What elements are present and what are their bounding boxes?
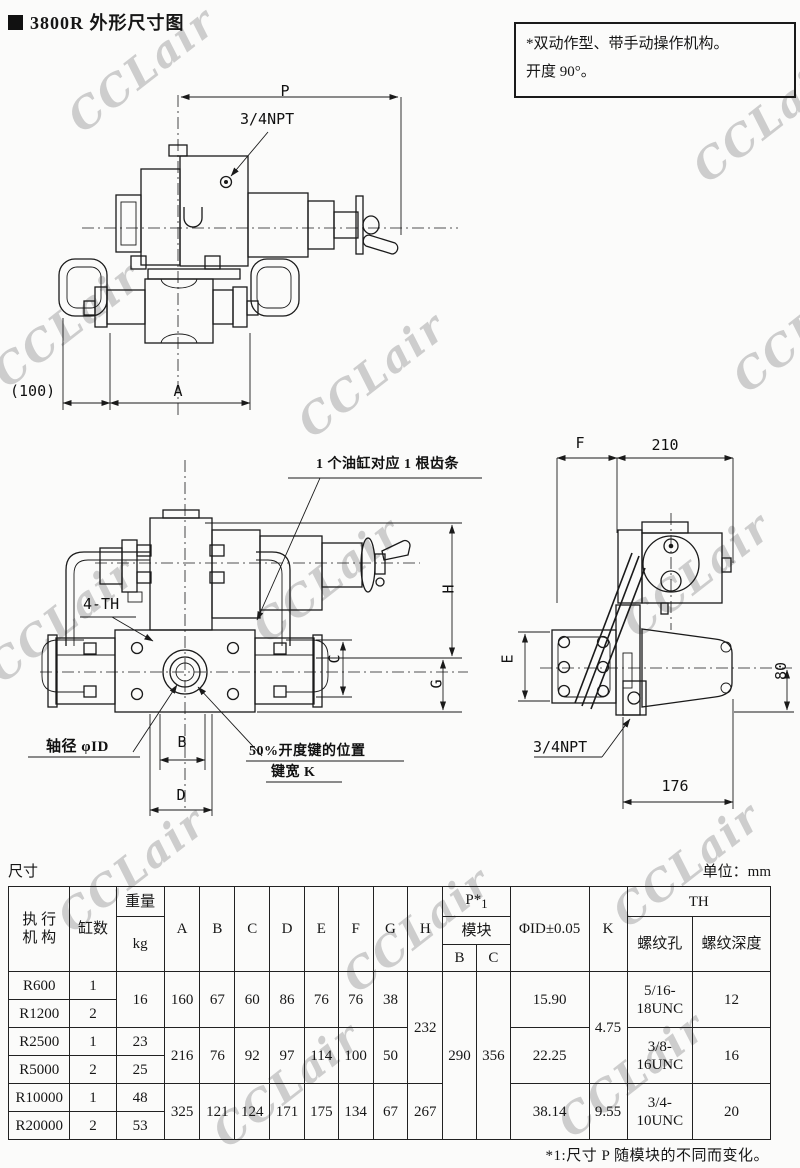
page-title: ■ 3800R 外形尺寸图 — [8, 9, 185, 35]
cell-cylinders: 2 — [70, 1056, 116, 1084]
header-thread-depth: 螺纹深度 — [693, 917, 771, 972]
cell-thread-hole: 3/8-16UNC — [627, 1028, 693, 1084]
header-module-b: B — [443, 945, 477, 972]
dimension-table: 执 行 机 构 缸数 重量 A B C D E F G H P*1 — [8, 886, 771, 1140]
cell-dim-c: 92 — [235, 1028, 270, 1084]
cell-dim-c: 124 — [235, 1084, 270, 1140]
header-k: K — [589, 887, 627, 972]
key-position-label: 50%开度键的位置 — [249, 740, 366, 760]
cell-dim-h: 267 — [408, 1084, 443, 1140]
dim-label-c: C — [326, 654, 344, 663]
dim-label-npt-side: 3/4NPT — [533, 738, 587, 756]
cell-thread-depth: 16 — [693, 1028, 771, 1084]
header-weight: 重量 — [116, 887, 164, 917]
table-unit-label: 单位：mm — [703, 860, 771, 881]
cell-dim-a: 216 — [164, 1028, 200, 1084]
cell-dim-e: 114 — [304, 1028, 338, 1084]
dim-label-210: 210 — [640, 436, 690, 454]
cell-thread-depth: 20 — [693, 1084, 771, 1140]
cell-weight: 23 — [116, 1028, 164, 1056]
side-view-line-art — [490, 425, 800, 820]
header-phi-id: ΦID±0.05 — [510, 887, 589, 972]
cell-module-b: 290 — [443, 972, 477, 1140]
cell-dim-g: 38 — [373, 972, 408, 1028]
cell-dim-f: 134 — [338, 1084, 373, 1140]
dim-label-176: 176 — [645, 777, 705, 795]
header-module: 模块 — [443, 917, 511, 945]
header-p-subscript: 1 — [481, 897, 487, 911]
dim-label-80: 80 — [772, 662, 790, 680]
header-dim-f: F — [338, 887, 373, 972]
cell-dim-a: 160 — [164, 972, 200, 1028]
cell-weight: 25 — [116, 1056, 164, 1084]
cell-cylinders: 2 — [70, 1112, 116, 1140]
cell-dim-e: 76 — [304, 972, 338, 1028]
cell-k: 9.55 — [589, 1084, 627, 1140]
note-line-2: 开度 90°。 — [526, 59, 784, 87]
cell-cylinders: 1 — [70, 1084, 116, 1112]
cell-phi-id: 22.25 — [510, 1028, 589, 1084]
header-module-c: C — [476, 945, 510, 972]
header-dim-g: G — [373, 887, 408, 972]
cell-cylinders: 1 — [70, 1028, 116, 1056]
cell-cylinders: 2 — [70, 1000, 116, 1028]
header-dim-d: D — [270, 887, 305, 972]
cell-dim-a: 325 — [164, 1084, 200, 1140]
cell-dim-b: 76 — [200, 1028, 235, 1084]
cell-module-c: 356 — [476, 972, 510, 1140]
shaft-diameter-label: 轴径 φID — [46, 735, 109, 756]
cell-dim-h: 232 — [408, 972, 443, 1084]
title-square-icon: ■ — [8, 15, 23, 30]
cell-k: 4.75 — [589, 972, 627, 1084]
cell-phi-id: 15.90 — [510, 972, 589, 1028]
note-box: *双动作型、带手动操作机构。 开度 90°。 — [514, 22, 796, 98]
cell-model: R5000 — [9, 1056, 70, 1084]
catalog-page: CCLair CCLair CCLair CCLair CCLair CCLai… — [0, 0, 800, 1168]
table-caption: 尺寸 — [8, 860, 38, 881]
cell-weight: 53 — [116, 1112, 164, 1140]
dim-label-100: (100) — [10, 382, 55, 400]
header-thread-hole: 螺纹孔 — [627, 917, 693, 972]
header-weight-unit: kg — [116, 917, 164, 972]
header-dim-b: B — [200, 887, 235, 972]
callout-4th: 4-TH — [83, 595, 119, 613]
header-dim-e: E — [304, 887, 338, 972]
dim-label-npt-top: 3/4NPT — [240, 110, 294, 128]
header-dim-h: H — [408, 887, 443, 972]
dim-label-g: G — [428, 679, 446, 688]
cell-model: R2500 — [9, 1028, 70, 1056]
cell-dim-g: 67 — [373, 1084, 408, 1140]
front-view-line-art — [0, 430, 500, 830]
cell-dim-d: 86 — [270, 972, 305, 1028]
header-p-text: P* — [465, 892, 481, 908]
table-row: R2500 1 23 216 76 92 97 114 100 50 22.25… — [9, 1028, 771, 1056]
header-actuator-line2: 机 构 — [22, 930, 56, 946]
cell-dim-d: 171 — [270, 1084, 305, 1140]
cell-dim-d: 97 — [270, 1028, 305, 1084]
dim-label-h: H — [440, 584, 458, 593]
cell-cylinders: 1 — [70, 972, 116, 1000]
cell-phi-id: 38.14 — [510, 1084, 589, 1140]
cell-model: R10000 — [9, 1084, 70, 1112]
dim-label-a: A — [163, 382, 193, 400]
cell-model: R1200 — [9, 1000, 70, 1028]
header-actuator-line1: 执 行 — [22, 912, 56, 928]
cell-dim-e: 175 — [304, 1084, 338, 1140]
cell-weight: 48 — [116, 1084, 164, 1112]
cell-thread-hole: 3/4-10UNC — [627, 1084, 693, 1140]
header-cylinders: 缸数 — [70, 887, 116, 972]
dim-label-p: P — [270, 82, 300, 100]
note-line-1: *双动作型、带手动操作机构。 — [526, 31, 784, 59]
header-th: TH — [627, 887, 771, 917]
dim-label-b: B — [167, 733, 197, 751]
table-header-row-1: 执 行 机 构 缸数 重量 A B C D E F G H P*1 — [9, 887, 771, 917]
dim-label-e: E — [499, 654, 517, 663]
cell-weight: 16 — [116, 972, 164, 1028]
key-width-label: 键宽 K — [271, 761, 315, 781]
callout-rack: 1 个油缸对应 1 根齿条 — [316, 453, 459, 473]
top-view-line-art — [0, 85, 520, 430]
dimension-table-section: 尺寸 单位：mm 执 行 机 构 缸数 — [8, 860, 773, 1165]
cell-dim-f: 100 — [338, 1028, 373, 1084]
cell-model: R600 — [9, 972, 70, 1000]
cell-dim-b: 67 — [200, 972, 235, 1028]
cell-dim-c: 60 — [235, 972, 270, 1028]
table-row: R600 1 16 160 67 60 86 76 76 38 232 290 … — [9, 972, 771, 1000]
cell-dim-b: 121 — [200, 1084, 235, 1140]
cell-model: R20000 — [9, 1112, 70, 1140]
cell-dim-g: 50 — [373, 1028, 408, 1084]
header-actuator: 执 行 机 构 — [9, 887, 70, 972]
dim-label-d: D — [166, 786, 196, 804]
page-title-text: 3800R 外形尺寸图 — [30, 9, 185, 35]
table-footnote: *1:尺寸 P 随模块的不同而变化。 — [8, 1144, 773, 1165]
header-p: P*1 — [443, 887, 511, 917]
cell-thread-hole: 5/16-18UNC — [627, 972, 693, 1028]
header-dim-c: C — [235, 887, 270, 972]
cell-thread-depth: 12 — [693, 972, 771, 1028]
dim-label-f: F — [565, 434, 595, 452]
cell-dim-f: 76 — [338, 972, 373, 1028]
table-row: R10000 1 48 325 121 124 171 175 134 67 2… — [9, 1084, 771, 1112]
header-dim-a: A — [164, 887, 200, 972]
